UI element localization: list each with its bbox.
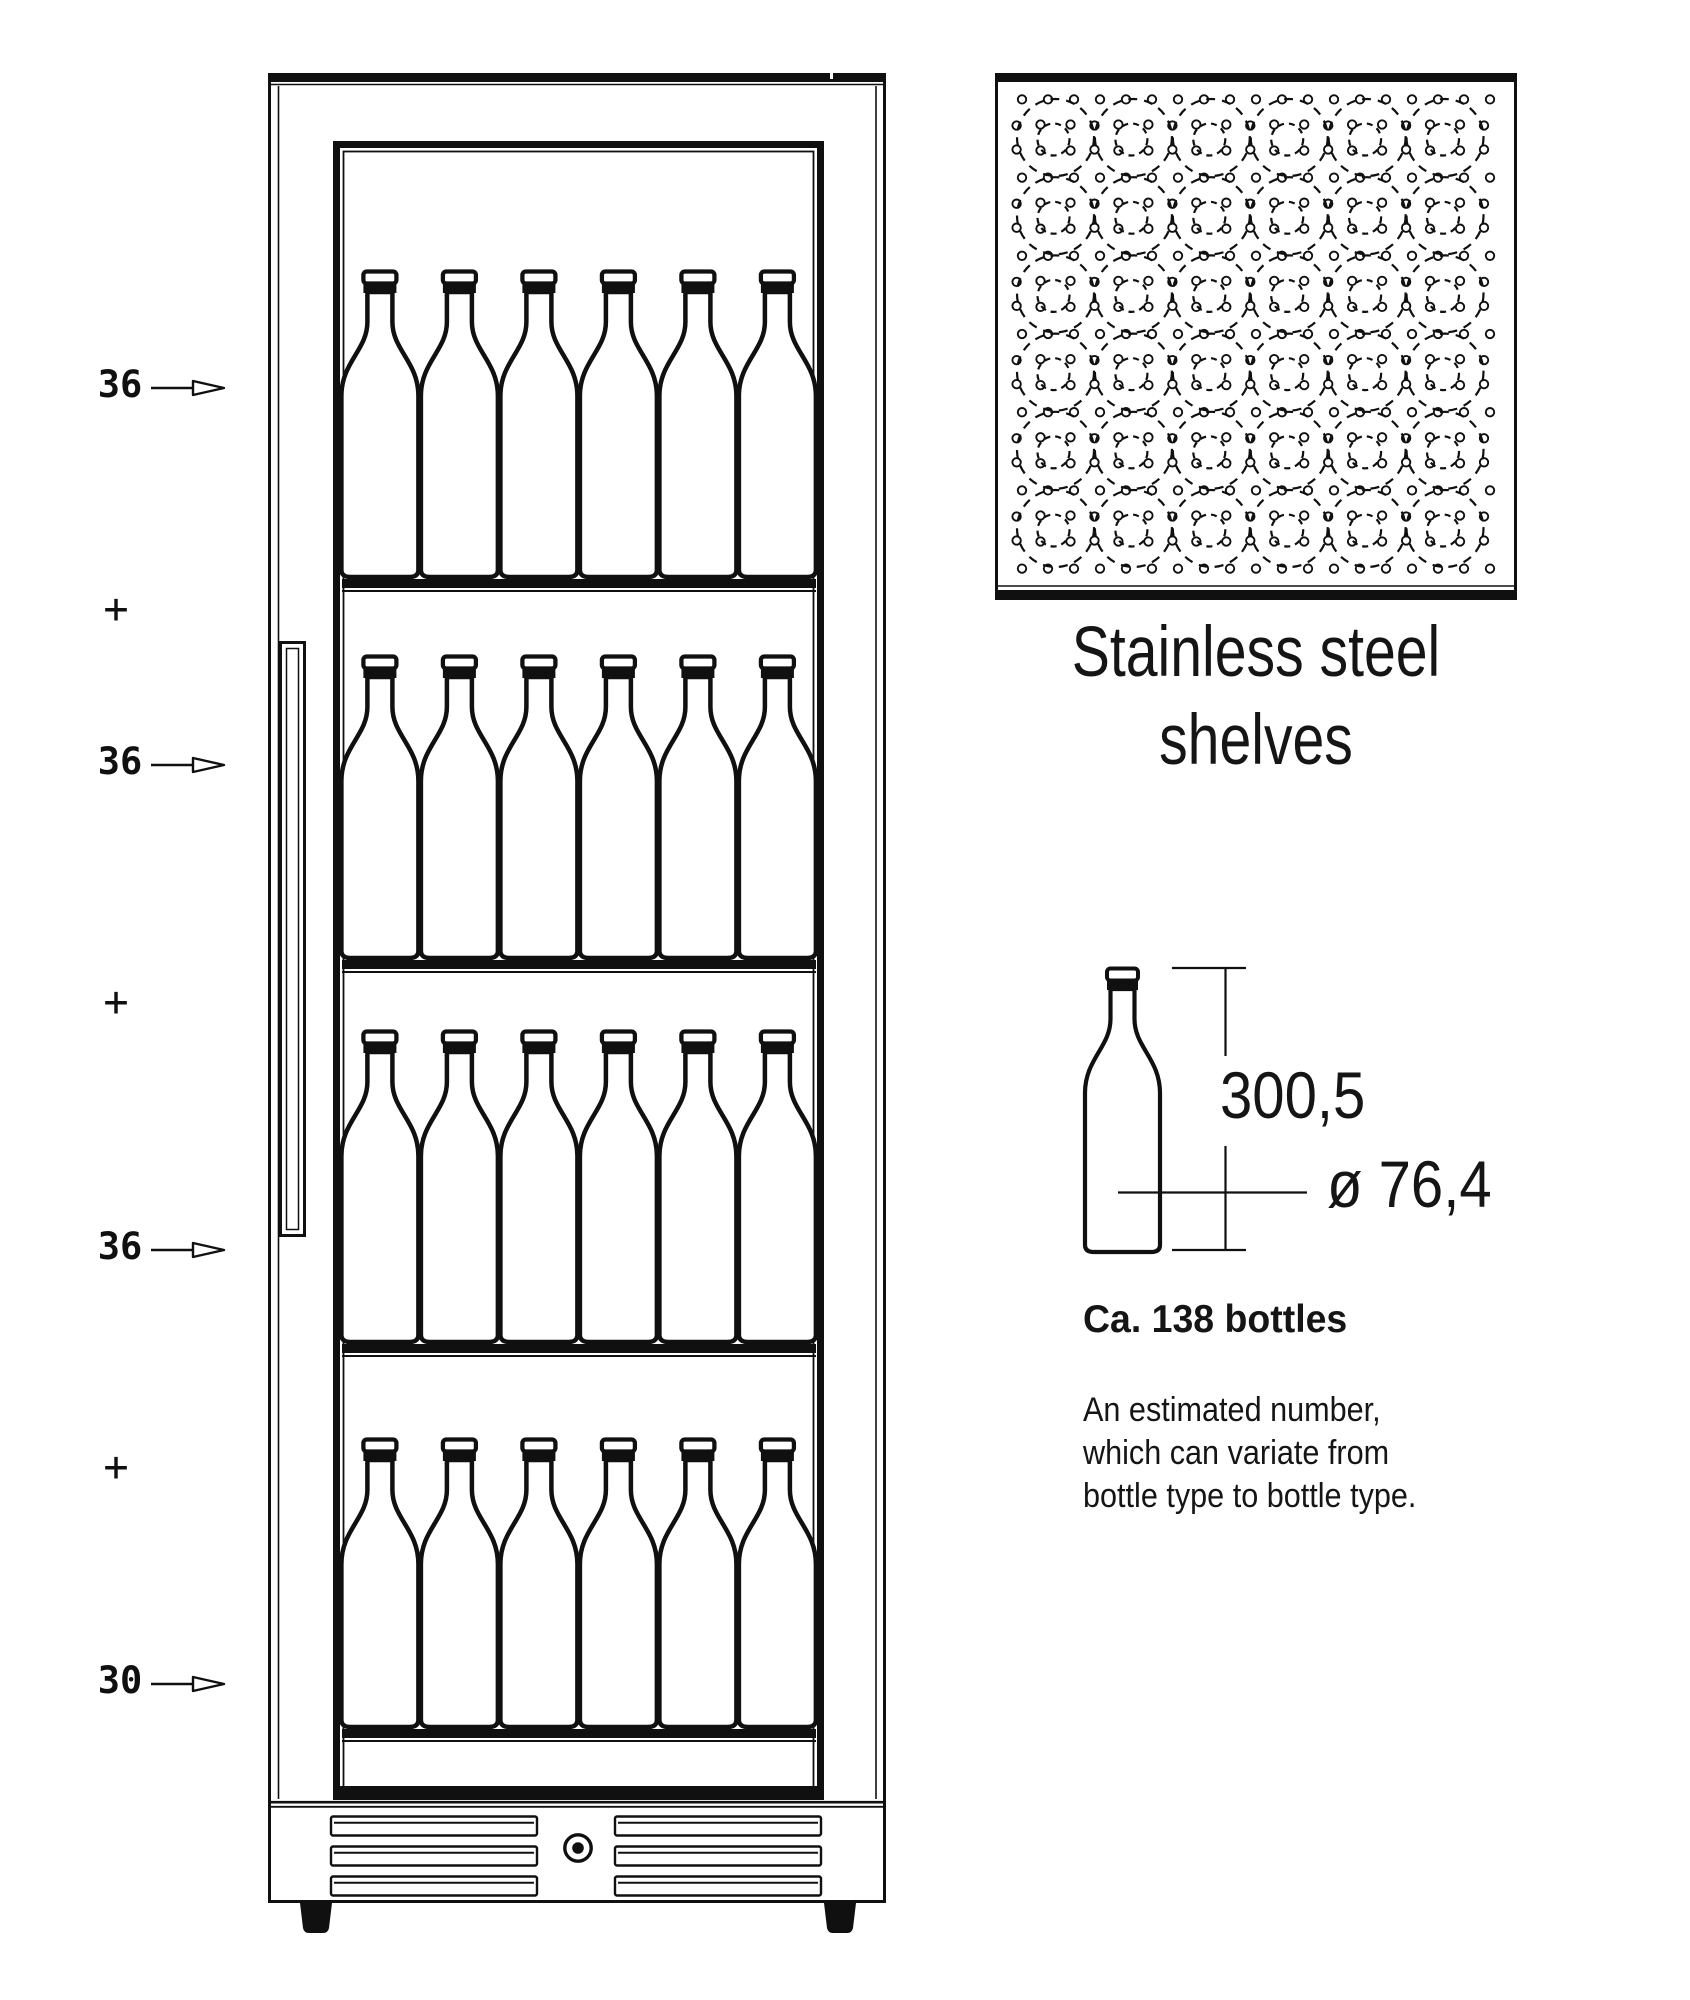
bottle-body-position xyxy=(1251,334,1328,411)
bottle-body-position xyxy=(1329,490,1406,567)
ventilation-panel xyxy=(268,1802,885,1933)
bottle-body-position xyxy=(1251,177,1328,254)
bottle-diameter-dimension: ø 76,4 xyxy=(1327,1151,1492,1217)
shelf-caption: Stainless steel shelves xyxy=(1046,609,1466,785)
foot xyxy=(824,1903,856,1933)
capacity-plus-label: + xyxy=(94,587,138,631)
capacity-note-line1: An estimated number, xyxy=(1083,1389,1416,1432)
bottle-body-position xyxy=(1407,490,1484,567)
bottle-body-position xyxy=(1329,412,1406,489)
bottle-body-position xyxy=(1251,255,1328,332)
vent-slot xyxy=(615,1817,821,1836)
bottle-body-position xyxy=(1173,177,1250,254)
wine-cabinet-spec-sheet: 36+36+36+30 Stainless steel shelves 300,… xyxy=(0,0,1690,2000)
capacity-count-label: 36 xyxy=(88,1227,152,1267)
bottle-body-position xyxy=(1173,334,1250,411)
bottle-body-position xyxy=(1095,490,1172,567)
bottle-body-position xyxy=(1017,255,1094,332)
bottle-body-position xyxy=(1251,490,1328,567)
bottle-body-position xyxy=(1173,412,1250,489)
bottle-body-position xyxy=(1095,177,1172,254)
bottle-body-position xyxy=(1017,177,1094,254)
bottle-body-position xyxy=(1407,255,1484,332)
bottle-body-position xyxy=(1329,99,1406,176)
right-arrow-icon xyxy=(151,1243,224,1257)
capacity-count-label: 36 xyxy=(88,742,152,782)
foot xyxy=(300,1903,332,1933)
bottle-body-position xyxy=(1251,412,1328,489)
bottle-body-position xyxy=(1173,490,1250,567)
bottle-body-position xyxy=(1017,99,1094,176)
bottle-body-position xyxy=(1017,334,1094,411)
shelf-caption-line2: shelves xyxy=(1046,697,1466,785)
bottle-body-position xyxy=(1407,177,1484,254)
right-arrow-icon xyxy=(151,381,224,395)
bottle-body-position xyxy=(1329,177,1406,254)
right-arrow-icon xyxy=(151,758,224,772)
bottle-body-position xyxy=(1407,412,1484,489)
bottle-body-position xyxy=(1017,412,1094,489)
shelf-row xyxy=(341,272,816,592)
capacity-plus-label: + xyxy=(94,1445,138,1489)
capacity-note: An estimated number, which can variate f… xyxy=(1083,1389,1416,1518)
bottle-body-position xyxy=(1329,255,1406,332)
capacity-title: Ca. 138 bottles xyxy=(1083,1300,1347,1340)
vent-slot xyxy=(331,1877,537,1896)
bottle-height-dimension: 300,5 xyxy=(1220,1062,1365,1128)
shelf-caption-line1: Stainless steel xyxy=(1046,609,1466,697)
bottle-body-position xyxy=(1173,99,1250,176)
vent-slot xyxy=(615,1877,821,1896)
capacity-note-line2: which can variate from xyxy=(1083,1432,1416,1475)
shelf-row xyxy=(341,657,816,973)
capacity-count-label: 30 xyxy=(88,1661,152,1701)
vent-slot xyxy=(615,1847,821,1866)
bottle-body-position xyxy=(1251,99,1328,176)
shelf-top-view-drawing xyxy=(995,73,1517,600)
right-arrow-icon xyxy=(151,1677,224,1691)
bottle-body-position xyxy=(1329,334,1406,411)
capacity-note-line3: bottle type to bottle type. xyxy=(1083,1475,1416,1518)
shelf-row xyxy=(341,1440,816,1742)
bottle-body-position xyxy=(1095,334,1172,411)
capacity-count-label: 36 xyxy=(88,365,152,405)
capacity-arrows xyxy=(151,381,224,1691)
bottle-body-position xyxy=(1095,412,1172,489)
shelf-row xyxy=(341,1032,816,1357)
bottle-body-position xyxy=(1407,99,1484,176)
bottle-body-position xyxy=(1095,99,1172,176)
bottle-body-position xyxy=(1017,490,1094,567)
bottle-body-position xyxy=(1095,255,1172,332)
bottle-body-position xyxy=(1407,334,1484,411)
capacity-plus-label: + xyxy=(94,980,138,1024)
vent-slot xyxy=(331,1847,537,1866)
bottle-body-position xyxy=(1173,255,1250,332)
vent-slot xyxy=(331,1817,537,1836)
line-art-drawing xyxy=(0,0,1690,2000)
